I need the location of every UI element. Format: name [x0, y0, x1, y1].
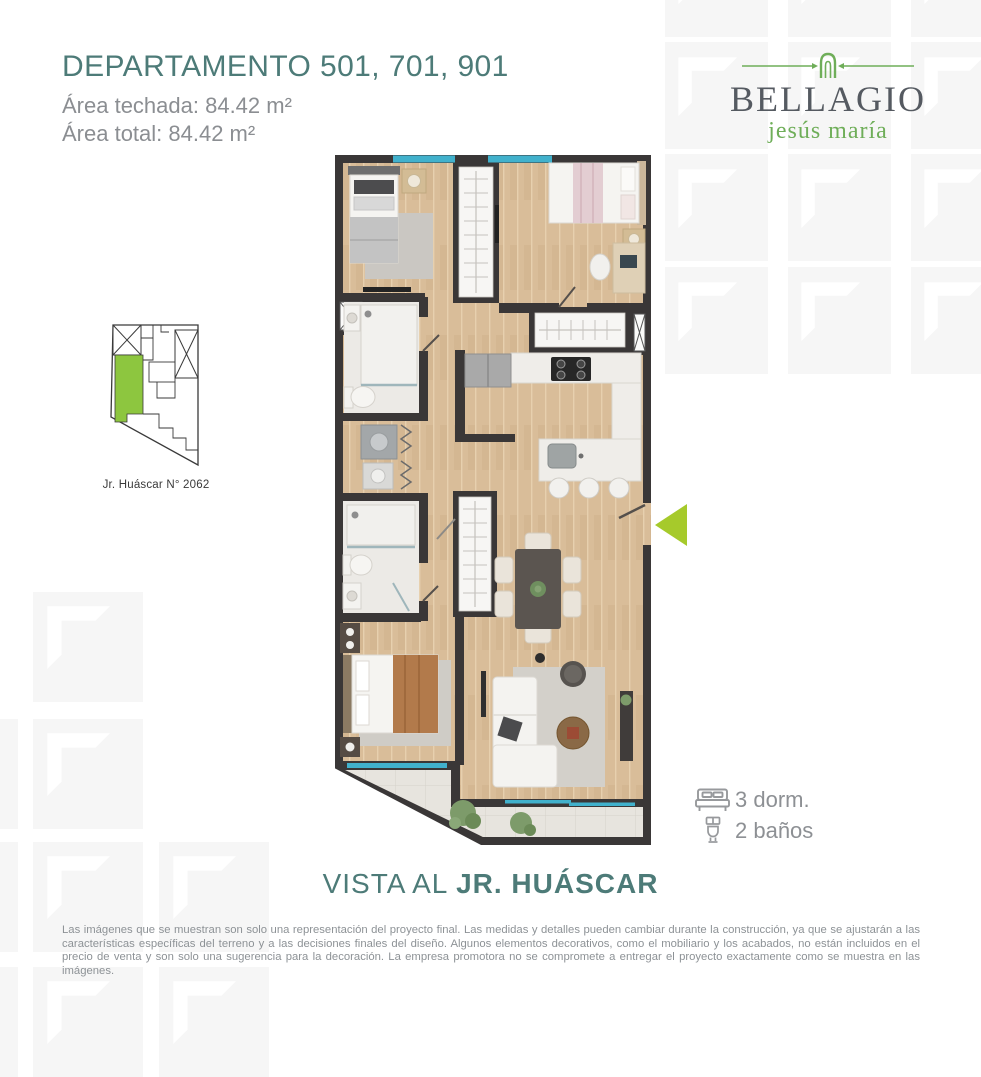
- brand-name: BELLAGIO: [718, 80, 938, 118]
- toilet-icon: [691, 816, 735, 845]
- feature-bathrooms: 2 baños: [691, 815, 813, 846]
- pattern-tile: [33, 719, 143, 829]
- pattern-tile: [665, 0, 768, 37]
- disclaimer-text: Las imágenes que se muestran son solo un…: [62, 924, 920, 978]
- brochure-page: { "header": { "title": "DEPARTAMENTO 501…: [0, 0, 981, 1024]
- view-caption-street: JR. HUÁSCAR: [456, 868, 658, 899]
- brand-district: jesús maría: [718, 118, 938, 144]
- pattern-tile: [788, 267, 891, 374]
- site-plan-map: [101, 318, 211, 470]
- pattern-tile: [0, 719, 18, 829]
- pattern-tile: [0, 967, 18, 1077]
- view-caption: VISTA AL JR. HUÁSCAR: [0, 868, 981, 900]
- highlighted-unit: [115, 355, 143, 422]
- pattern-tile: [911, 0, 981, 37]
- pattern-tile: [911, 267, 981, 374]
- site-plan: Jr. Huáscar N° 2062: [96, 318, 216, 491]
- pattern-tile: [788, 0, 891, 37]
- bathrooms-label: 2 baños: [735, 818, 813, 844]
- area-total-text: Área total: 84.42 m²: [62, 120, 509, 148]
- pattern-tile: [788, 154, 891, 261]
- site-plan-address: Jr. Huáscar N° 2062: [96, 479, 216, 491]
- pattern-tile: [33, 592, 143, 702]
- feature-bedrooms: 3 dorm.: [691, 784, 813, 815]
- bed-icon: [691, 787, 735, 813]
- arch-icon: [718, 52, 938, 80]
- area-roofed-text: Área techada: 84.42 m²: [62, 92, 509, 120]
- page-title: DEPARTAMENTO 501, 701, 901: [62, 50, 509, 84]
- entrance-arrow-icon: [655, 504, 687, 546]
- header: DEPARTAMENTO 501, 701, 901 Área techada:…: [62, 50, 509, 148]
- entrance-opening: [641, 503, 651, 545]
- bedrooms-label: 3 dorm.: [735, 787, 810, 813]
- pattern-tile: [911, 154, 981, 261]
- pattern-tile: [33, 967, 143, 1077]
- pattern-tile: [159, 967, 269, 1077]
- features: 3 dorm. 2 baños: [691, 784, 813, 846]
- brand-logo: BELLAGIO jesús maría: [718, 52, 938, 144]
- floor-plan: [335, 155, 695, 845]
- view-caption-prefix: VISTA AL: [323, 868, 457, 899]
- area-info: Área techada: 84.42 m² Área total: 84.42…: [62, 92, 509, 148]
